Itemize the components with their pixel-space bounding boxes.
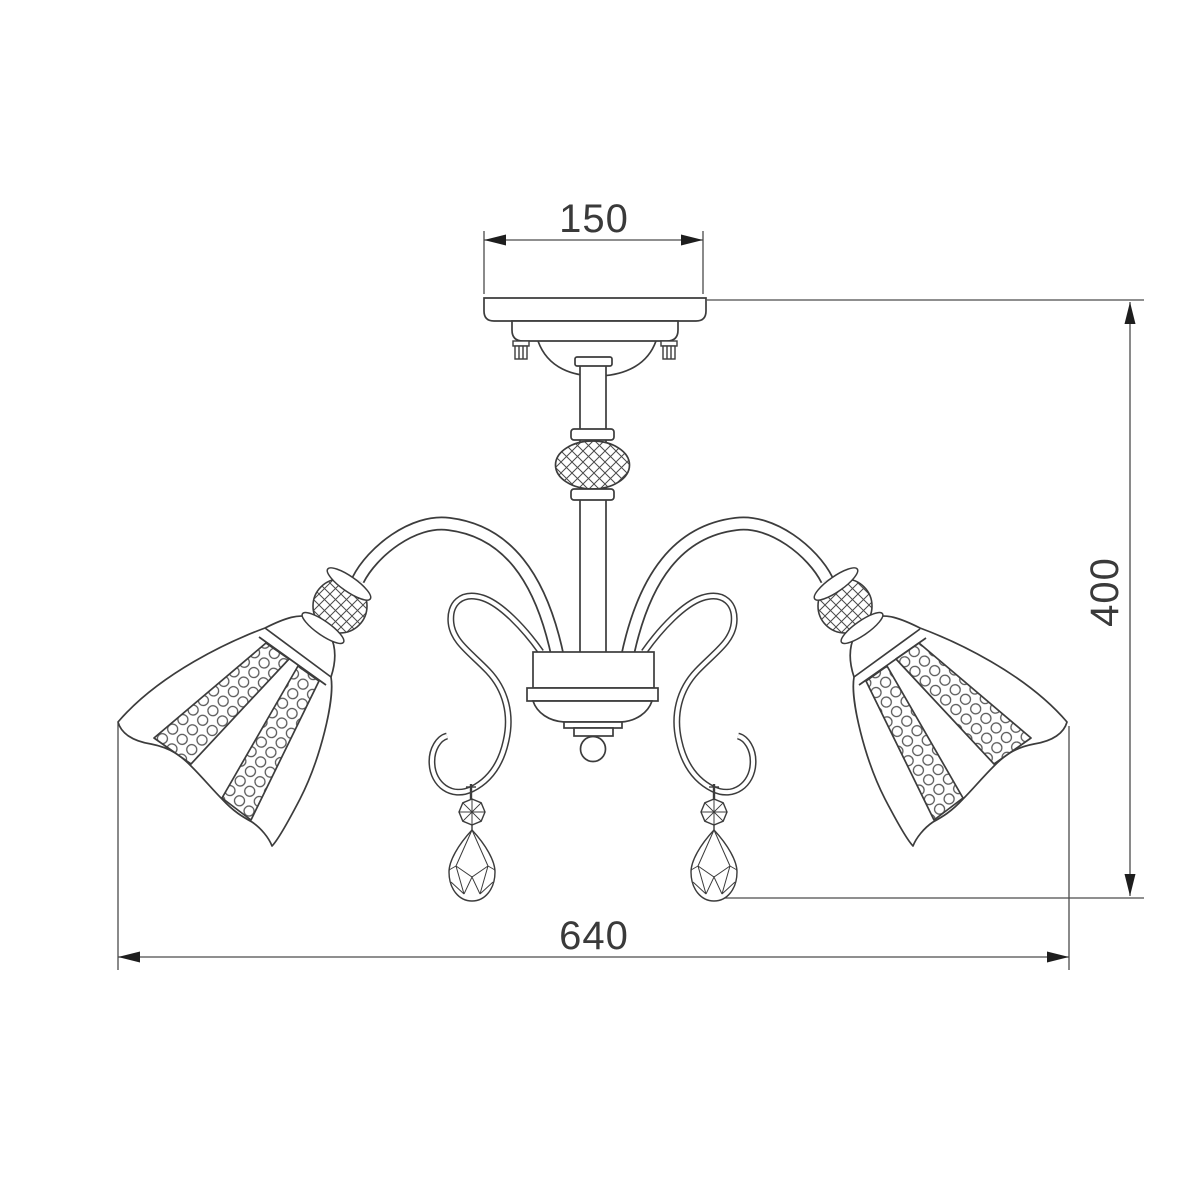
right-scroll-hook — [644, 596, 753, 792]
hub-step — [564, 722, 622, 728]
right-crystal-pendant — [691, 784, 737, 901]
left-scroll-hook — [432, 596, 541, 792]
arrow-left-icon — [484, 235, 506, 246]
left-shade-silhouette — [118, 616, 335, 846]
left-shade — [118, 616, 335, 846]
hub-bell — [533, 701, 652, 722]
canopy-plate — [484, 298, 706, 321]
canopy-screw — [513, 341, 529, 359]
center-hub — [527, 652, 658, 762]
central-stem — [556, 357, 630, 652]
arrow-left-icon — [118, 952, 140, 963]
chandelier-technical-drawing: 150 400 640 — [0, 0, 1200, 1200]
right-shade — [850, 616, 1067, 846]
hub-ring — [527, 688, 658, 701]
hub-cylinder — [533, 652, 654, 688]
stem-collar — [571, 429, 614, 440]
arrow-down-icon — [1125, 874, 1136, 896]
dimension-label-canopy-width: 150 — [559, 197, 629, 241]
arrow-right-icon — [1047, 952, 1069, 963]
stem-crystal-ball — [556, 441, 630, 489]
stem-collar — [575, 357, 612, 366]
drawing-page: 150 400 640 — [0, 0, 1200, 1200]
hub-step — [574, 728, 613, 736]
right-shade-silhouette — [850, 616, 1067, 846]
arrow-right-icon — [681, 235, 703, 246]
left-crystal-pendant — [449, 784, 495, 901]
dimension-label-overall-height: 400 — [1083, 557, 1127, 627]
dimension-label-overall-width: 640 — [559, 914, 629, 958]
arrow-up-icon — [1125, 302, 1136, 324]
stem-collar — [571, 489, 614, 500]
hub-finial-ball — [581, 737, 606, 762]
canopy-screw — [661, 341, 677, 359]
canopy-tier — [512, 321, 678, 341]
